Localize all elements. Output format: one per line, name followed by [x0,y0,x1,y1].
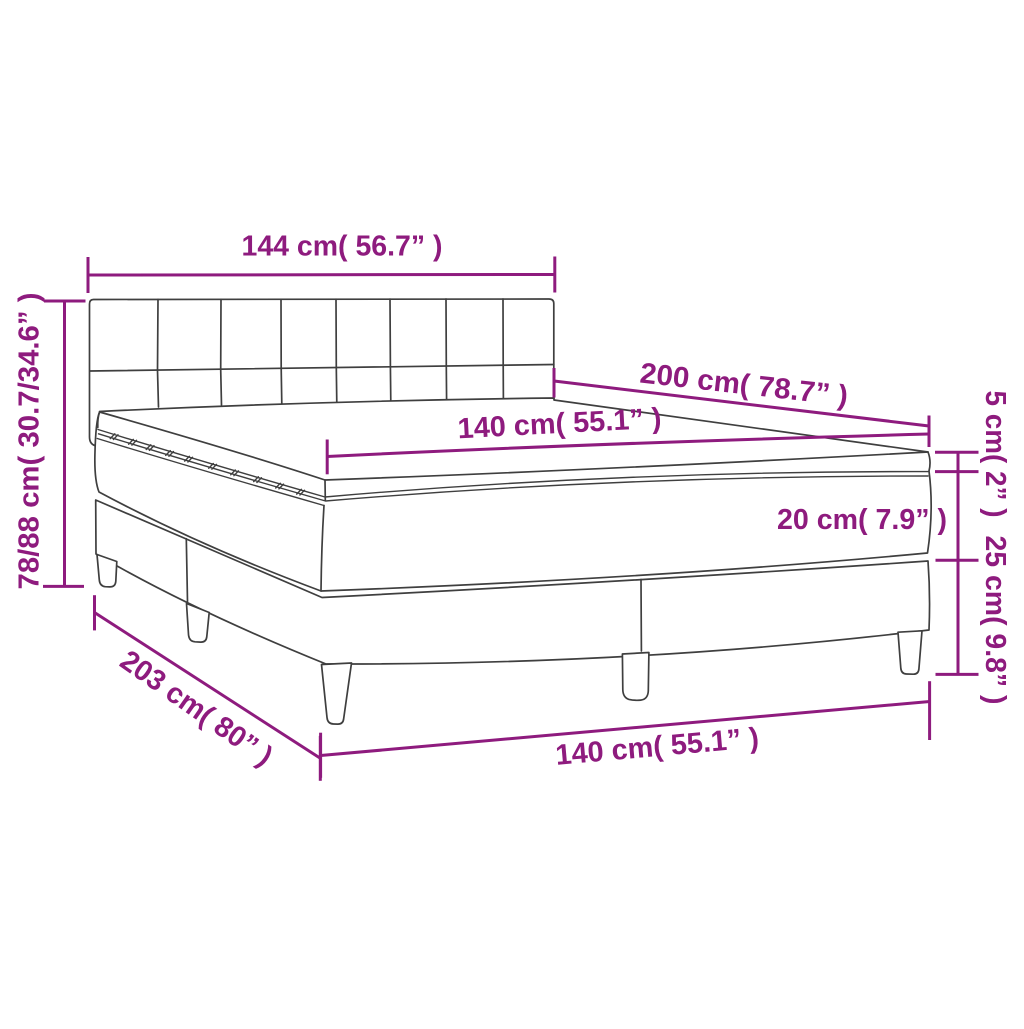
svg-text:144 cm( 56.7” ): 144 cm( 56.7” ) [242,231,443,263]
svg-text:5 cm( 2” ): 5 cm( 2” ) [979,391,1011,518]
svg-text:78/88 cm( 30.7/34.6” ): 78/88 cm( 30.7/34.6” ) [14,293,46,590]
svg-text:25 cm( 9.8” ): 25 cm( 9.8” ) [979,536,1011,705]
svg-text:20 cm( 7.9” ): 20 cm( 7.9” ) [777,504,947,536]
